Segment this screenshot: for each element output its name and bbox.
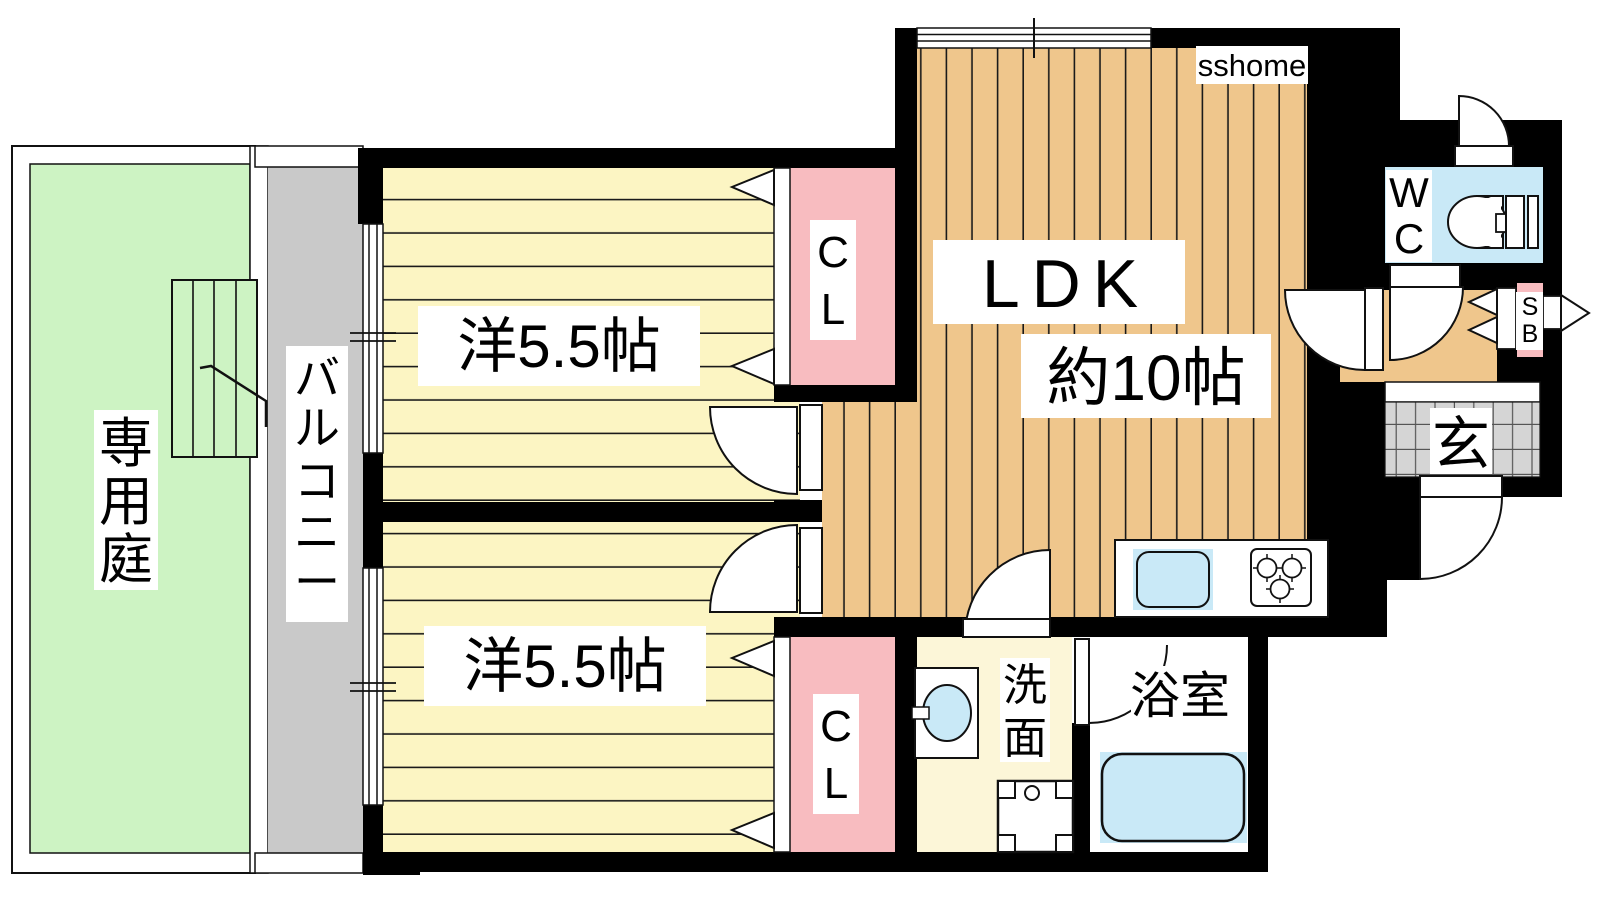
closet2-label: C bbox=[820, 702, 852, 751]
svg-text:L: L bbox=[824, 759, 848, 808]
entrance-door-leaf bbox=[1420, 476, 1502, 497]
brand-label: sshome bbox=[1198, 48, 1307, 83]
entrance-label: 玄 bbox=[1432, 412, 1490, 477]
closet1-door-track bbox=[774, 168, 790, 385]
garden-balcony-divider bbox=[250, 146, 268, 873]
entrance-door-arc bbox=[1420, 497, 1502, 579]
bedroom1-label: 洋5.5帖 bbox=[457, 313, 660, 380]
svg-text:ル: ル bbox=[294, 402, 340, 454]
wc-door-leaf bbox=[1390, 265, 1460, 287]
bathtub bbox=[1100, 752, 1247, 843]
ldk-hall-door-leaf bbox=[1365, 288, 1383, 370]
svg-text:C: C bbox=[1394, 215, 1424, 262]
svg-text:ー: ー bbox=[294, 556, 340, 608]
wc-window-leaf bbox=[1455, 146, 1513, 166]
washing-machine-pan bbox=[998, 781, 1073, 852]
bathroom-door-leaf bbox=[1075, 639, 1089, 725]
meter-box-leaf bbox=[1543, 296, 1561, 329]
washroom-label: 洗 bbox=[1003, 661, 1047, 710]
svg-text:ニ: ニ bbox=[294, 506, 340, 558]
garden-stairs bbox=[172, 280, 266, 457]
wc-window-arc bbox=[1459, 96, 1509, 146]
bedroom2-label: 洋5.5帖 bbox=[463, 633, 666, 700]
svg-text:コ: コ bbox=[294, 455, 340, 507]
ldk-floor bbox=[917, 48, 1307, 617]
svg-text:用: 用 bbox=[99, 472, 153, 532]
bathroom-label: 浴室 bbox=[1130, 668, 1230, 724]
meter-box-arrow bbox=[1561, 295, 1589, 331]
washroom-door-leaf bbox=[963, 619, 1050, 637]
svg-text:庭: 庭 bbox=[99, 530, 153, 590]
garden-label: 専 bbox=[99, 414, 153, 474]
entrance-step bbox=[1385, 382, 1540, 402]
ldk-corridor-floor bbox=[822, 402, 917, 617]
toilet-tank bbox=[1506, 196, 1524, 248]
floor-plan: sshome 専 用 庭 バ ル コ ニ ー 洋5.5帖 洋5.5帖 LDK 約… bbox=[0, 0, 1600, 900]
bedroom1-door-leaf bbox=[800, 405, 822, 490]
shoebox-door-leaf bbox=[1497, 288, 1516, 349]
washbasin bbox=[912, 668, 978, 758]
svg-text:B: B bbox=[1522, 320, 1539, 348]
svg-text:面: 面 bbox=[1003, 714, 1047, 763]
balcony-label: バ bbox=[294, 352, 340, 404]
ldk-label: LDK bbox=[982, 246, 1150, 322]
faucet bbox=[912, 707, 929, 719]
ldk-size-label: 約10帖 bbox=[1046, 342, 1245, 414]
floor-plan-drawing: sshome 専 用 庭 バ ル コ ニ ー 洋5.5帖 洋5.5帖 LDK 約… bbox=[0, 0, 1600, 900]
svg-text:L: L bbox=[821, 285, 845, 334]
kitchen-counter bbox=[1115, 540, 1328, 617]
shoebox-label: S bbox=[1522, 293, 1539, 321]
toilet bbox=[1448, 196, 1538, 248]
bedroom2-door-leaf bbox=[800, 528, 822, 613]
wc-label: W bbox=[1389, 169, 1429, 216]
closet2-door-track bbox=[774, 637, 790, 852]
closet1-label: C bbox=[817, 228, 849, 277]
